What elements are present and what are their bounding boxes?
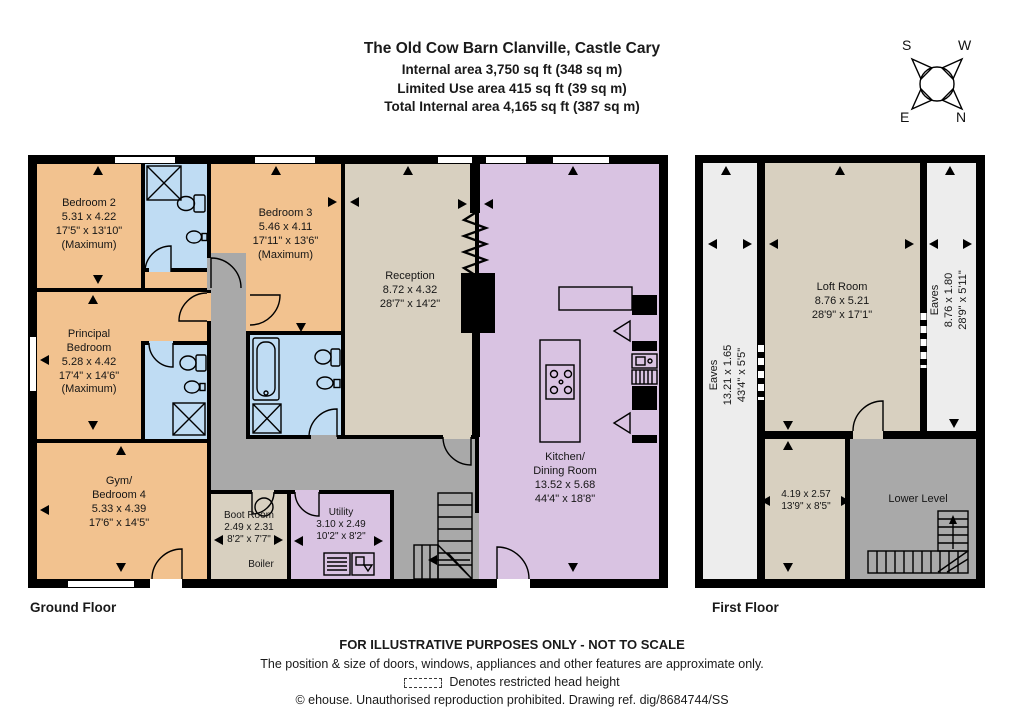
page-title: The Old Cow Barn Clanville, Castle Cary <box>0 40 1024 58</box>
room-ensuite-1 <box>145 164 207 268</box>
door-opening <box>497 579 530 588</box>
window <box>553 157 609 163</box>
measure-arrow-left-icon <box>350 197 359 207</box>
compass-rose-icon: S W E N <box>896 36 978 124</box>
measure-arrow-right-icon <box>963 239 972 249</box>
boiler-label: Boiler <box>232 559 290 571</box>
measure-arrow-up-icon <box>945 166 955 175</box>
lower-level-label: Lower Level <box>863 493 973 507</box>
first-floor-plan: Loft Room 8.76 x 5.21 28'9" x 17'1" Eave… <box>695 155 985 588</box>
measure-arrow-down-icon <box>568 563 578 572</box>
room-kitchen-dining <box>479 164 659 579</box>
floorplan-page: The Old Cow Barn Clanville, Castle Cary … <box>0 0 1024 724</box>
legend-line: Denotes restricted head height <box>0 673 1024 691</box>
copyright-line: © ehouse. Unauthorised reproduction proh… <box>0 691 1024 709</box>
room-bedroom-2-lobby <box>145 272 207 288</box>
hallway-main <box>211 439 479 490</box>
eaves-right-label: Eaves 8.76 x 1.80 28'9" x 5'11" <box>929 245 973 355</box>
measure-arrow-up-icon <box>403 166 413 175</box>
room-lower-level <box>850 439 976 579</box>
total-area-line: Total Internal area 4,165 sq ft (387 sq … <box>0 98 1024 117</box>
footer: FOR ILLUSTRATIVE PURPOSES ONLY - NOT TO … <box>0 637 1024 709</box>
measure-arrow-up-icon <box>271 166 281 175</box>
compass-w-label: W <box>958 37 972 53</box>
measure-arrow-left-icon <box>294 536 303 546</box>
measure-arrow-up-icon <box>93 166 103 175</box>
measure-arrow-up-icon <box>568 166 578 175</box>
measure-arrow-down-icon <box>783 421 793 430</box>
measure-arrow-up-icon <box>721 166 731 175</box>
restricted-head-height-legend-icon <box>404 678 442 688</box>
disclaimer-line-2: The position & size of doors, windows, a… <box>0 655 1024 673</box>
bedroom-3-label: Bedroom 3 5.46 x 4.11 17'11" x 13'6" (Ma… <box>233 207 338 262</box>
measure-arrow-down-icon <box>296 323 306 332</box>
first-floor-caption: First Floor <box>712 600 779 615</box>
measure-arrow-left-icon <box>761 496 770 506</box>
hallway-stairs <box>394 490 479 579</box>
measure-arrow-up-icon <box>116 446 126 455</box>
measure-arrow-up-icon <box>835 166 845 175</box>
hallway-corridor <box>211 253 246 443</box>
measure-arrow-up-icon <box>88 295 98 304</box>
measure-arrow-down-icon <box>783 563 793 572</box>
measure-arrow-left-icon <box>708 239 717 249</box>
measure-arrow-left-icon <box>929 239 938 249</box>
door-opening <box>150 579 182 588</box>
measure-arrow-right-icon <box>328 197 337 207</box>
disclaimer-line-1: FOR ILLUSTRATIVE PURPOSES ONLY - NOT TO … <box>0 637 1024 652</box>
measure-arrow-down-icon <box>93 275 103 284</box>
internal-area-line: Internal area 3,750 sq ft (348 sq m) <box>0 61 1024 80</box>
header: The Old Cow Barn Clanville, Castle Cary … <box>0 40 1024 117</box>
gym-bedroom-4-label: Gym/ Bedroom 4 5.33 x 4.39 17'6" x 14'5" <box>44 475 194 530</box>
measure-arrow-right-icon <box>743 239 752 249</box>
window <box>115 157 175 163</box>
reception-label: Reception 8.72 x 4.32 28'7" x 14'2" <box>348 270 472 312</box>
room-419-label: 4.19 x 2.57 13'9" x 8'5" <box>767 489 845 513</box>
principal-bedroom-label: Principal Bedroom 5.28 x 4.42 17'4" x 14… <box>36 328 142 397</box>
measure-arrow-right-icon <box>642 295 651 305</box>
limited-use-line: Limited Use area 415 sq ft (39 sq m) <box>0 80 1024 99</box>
room-family-bathroom <box>250 335 341 435</box>
measure-arrow-up-icon <box>783 441 793 450</box>
measure-arrow-down-icon <box>88 421 98 430</box>
window <box>255 157 315 163</box>
ground-floor-caption: Ground Floor <box>30 600 116 615</box>
measure-arrow-down-icon <box>116 563 126 572</box>
legend-text: Denotes restricted head height <box>449 675 619 689</box>
compass-s-label: S <box>902 37 911 53</box>
window <box>68 581 134 587</box>
measure-arrow-right-icon <box>841 496 850 506</box>
measure-arrow-left-icon <box>484 199 493 209</box>
compass-e-label: E <box>900 109 909 124</box>
measure-arrow-down-icon <box>949 419 959 428</box>
measure-arrow-left-icon <box>214 535 223 545</box>
measure-arrow-left-icon <box>769 239 778 249</box>
measure-arrow-left-icon <box>40 355 49 365</box>
measure-arrow-right-icon <box>274 535 283 545</box>
measure-arrow-right-icon <box>374 536 383 546</box>
room-ensuite-2 <box>145 345 207 439</box>
kitchen-dining-label: Kitchen/ Dining Room 13.52 x 5.68 44'4" … <box>490 451 640 506</box>
window <box>486 157 526 163</box>
ground-floor-plan: Bedroom 2 5.31 x 4.22 17'5" x 13'10" (Ma… <box>28 155 668 588</box>
measure-arrow-left-icon <box>40 505 49 515</box>
measure-arrow-right-icon <box>905 239 914 249</box>
bedroom-2-label: Bedroom 2 5.31 x 4.22 17'5" x 13'10" (Ma… <box>35 197 143 252</box>
window <box>438 157 472 163</box>
eaves-left-label: Eaves 13.21 x 1.65 43'4" x 5'5" <box>708 320 752 430</box>
loft-room-label: Loft Room 8.76 x 5.21 28'9" x 17'1" <box>767 281 917 323</box>
measure-arrow-right-icon <box>458 199 467 209</box>
compass-n-label: N <box>956 109 966 124</box>
